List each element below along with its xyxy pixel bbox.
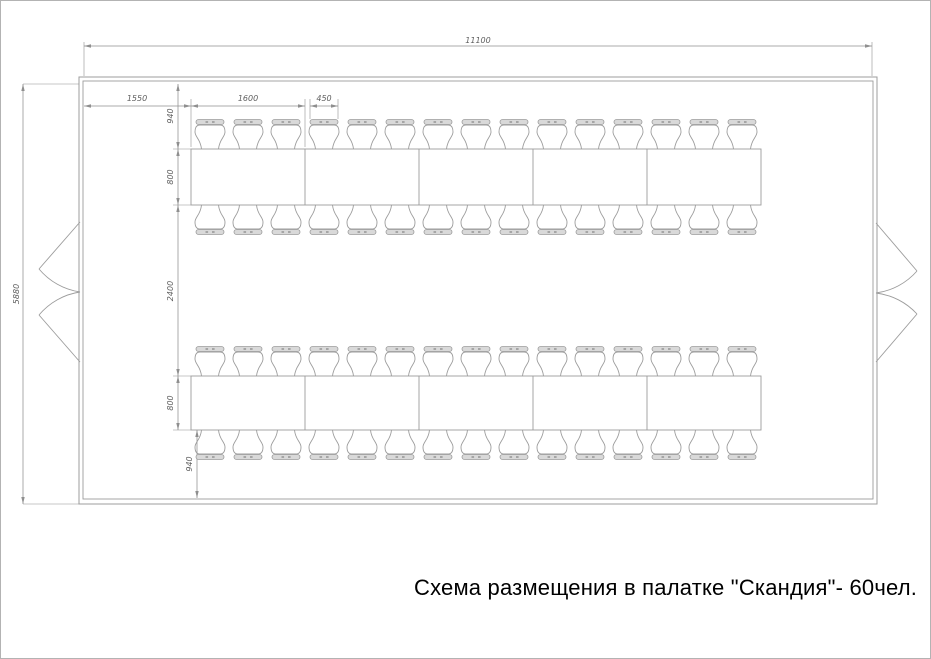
- backrest-dot: [212, 121, 215, 123]
- chair-seat: [233, 430, 263, 454]
- backrest-dot: [364, 121, 367, 123]
- chair: [233, 430, 263, 460]
- backrest-dot: [326, 121, 329, 123]
- backrest-dot: [554, 348, 557, 350]
- chair-seat: [537, 205, 567, 229]
- chair: [613, 347, 643, 377]
- chair-backrest: [310, 347, 338, 352]
- chair-seat: [613, 205, 643, 229]
- backrest-dot: [250, 231, 253, 233]
- backrest-dot: [516, 121, 519, 123]
- backrest-dot: [320, 348, 323, 350]
- chair-backrest: [728, 120, 756, 125]
- chair-backrest: [728, 347, 756, 352]
- chair-seat: [727, 352, 757, 376]
- backrest-dot: [434, 231, 437, 233]
- backrest-dot: [288, 456, 291, 458]
- chair-seat: [423, 205, 453, 229]
- chair: [537, 347, 567, 377]
- dimension-arrow: [310, 104, 317, 107]
- backrest-dot: [548, 456, 551, 458]
- backrest-dot: [624, 348, 627, 350]
- dimension-label: 1600: [238, 94, 258, 103]
- chair-seat: [575, 352, 605, 376]
- dimension-arrow: [195, 430, 198, 437]
- backrest-dot: [548, 231, 551, 233]
- backrest-dot: [700, 348, 703, 350]
- caption: Схема размещения в палатке "Скандия"- 60…: [414, 575, 917, 601]
- chair-seat: [537, 352, 567, 376]
- chair: [575, 347, 605, 377]
- backrest-dot: [212, 348, 215, 350]
- backrest-dot: [206, 456, 209, 458]
- entrance-right: [876, 223, 917, 362]
- chair-backrest: [690, 120, 718, 125]
- chair-seat: [499, 205, 529, 229]
- chair-seat: [385, 125, 415, 149]
- door-leaf: [39, 315, 80, 362]
- chair: [423, 347, 453, 377]
- chair: [385, 205, 415, 235]
- backrest-dot: [700, 456, 703, 458]
- chair-backrest: [462, 230, 490, 235]
- chair-backrest: [576, 455, 604, 460]
- backrest-dot: [554, 456, 557, 458]
- chair-backrest: [196, 455, 224, 460]
- chair-seat: [385, 430, 415, 454]
- chair-backrest: [272, 455, 300, 460]
- backrest-dot: [548, 348, 551, 350]
- chair-seat: [233, 205, 263, 229]
- chair-backrest: [728, 455, 756, 460]
- backrest-dot: [738, 231, 741, 233]
- backrest-dot: [744, 231, 747, 233]
- backrest-dot: [478, 348, 481, 350]
- backrest-dot: [434, 121, 437, 123]
- chair: [613, 205, 643, 235]
- chair-backrest: [196, 230, 224, 235]
- chair: [233, 205, 263, 235]
- drawing-page: 111005880155016004509408002400800940 Схе…: [0, 0, 931, 659]
- backrest-dot: [288, 231, 291, 233]
- chair: [309, 347, 339, 377]
- backrest-dot: [700, 121, 703, 123]
- backrest-dot: [668, 121, 671, 123]
- chair-backrest: [348, 455, 376, 460]
- backrest-dot: [472, 348, 475, 350]
- table-row: [191, 120, 761, 235]
- dimension-label: 11100: [465, 36, 490, 45]
- dimension-arrow: [176, 205, 179, 212]
- backrest-dot: [250, 121, 253, 123]
- dimension-arrow: [331, 104, 338, 107]
- backrest-dot: [630, 456, 633, 458]
- backrest-dot: [326, 456, 329, 458]
- backrest-dot: [320, 121, 323, 123]
- dimension-arrow: [176, 423, 179, 430]
- door-swing-arc: [39, 269, 80, 292]
- chair: [195, 430, 225, 460]
- chair-backrest: [690, 455, 718, 460]
- backrest-dot: [630, 231, 633, 233]
- backrest-dot: [744, 121, 747, 123]
- dimension-chair-width: 450: [310, 94, 338, 119]
- chair: [233, 120, 263, 150]
- dimension-label: 940: [185, 456, 194, 471]
- entrance-left: [39, 222, 80, 362]
- backrest-dot: [440, 348, 443, 350]
- chair-seat: [347, 352, 377, 376]
- backrest-dot: [706, 456, 709, 458]
- chair-backrest: [386, 230, 414, 235]
- chair-seat: [309, 352, 339, 376]
- chair: [727, 205, 757, 235]
- chair: [537, 205, 567, 235]
- backrest-dot: [206, 231, 209, 233]
- backrest-dot: [706, 348, 709, 350]
- backrest-dot: [364, 231, 367, 233]
- chair-backrest: [500, 120, 528, 125]
- chair-seat: [461, 205, 491, 229]
- dimension-arrow: [176, 369, 179, 376]
- dimension-label: 450: [316, 94, 331, 103]
- dimension-arrow: [191, 104, 198, 107]
- backrest-dot: [592, 231, 595, 233]
- chair: [537, 430, 567, 460]
- backrest-dot: [510, 231, 513, 233]
- chair: [309, 205, 339, 235]
- backrest-dot: [244, 121, 247, 123]
- chair-backrest: [272, 230, 300, 235]
- backrest-dot: [548, 121, 551, 123]
- backrest-dot: [402, 121, 405, 123]
- backrest-dot: [662, 121, 665, 123]
- chair: [271, 120, 301, 150]
- chair: [461, 430, 491, 460]
- chair: [195, 347, 225, 377]
- backrest-dot: [662, 348, 665, 350]
- chair-seat: [499, 352, 529, 376]
- chair: [461, 120, 491, 150]
- chair-seat: [651, 430, 681, 454]
- chair-backrest: [424, 120, 452, 125]
- chair-backrest: [652, 455, 680, 460]
- chair-seat: [727, 430, 757, 454]
- chair: [271, 205, 301, 235]
- backrest-dot: [668, 231, 671, 233]
- dimension-arrow: [176, 142, 179, 149]
- chair-backrest: [310, 455, 338, 460]
- backrest-dot: [434, 348, 437, 350]
- chair: [499, 347, 529, 377]
- chair: [651, 347, 681, 377]
- chair-seat: [195, 352, 225, 376]
- table-row: [191, 347, 761, 460]
- backrest-dot: [440, 456, 443, 458]
- chair-backrest: [386, 120, 414, 125]
- chair: [347, 120, 377, 150]
- chair-backrest: [500, 347, 528, 352]
- chair: [689, 205, 719, 235]
- chair-backrest: [386, 347, 414, 352]
- backrest-dot: [738, 121, 741, 123]
- chair: [575, 120, 605, 150]
- chair-seat: [575, 125, 605, 149]
- backrest-dot: [516, 231, 519, 233]
- chair: [613, 120, 643, 150]
- chair-backrest: [500, 455, 528, 460]
- chair: [347, 347, 377, 377]
- chair-seat: [689, 205, 719, 229]
- chair-seat: [309, 430, 339, 454]
- chair: [423, 430, 453, 460]
- chair-seat: [233, 125, 263, 149]
- chair-backrest: [310, 120, 338, 125]
- chair-seat: [689, 430, 719, 454]
- chair: [271, 430, 301, 460]
- dimension-table-depth-bottom: 800: [166, 376, 191, 430]
- chair-seat: [309, 205, 339, 229]
- backrest-dot: [244, 456, 247, 458]
- dimension-arrow: [21, 497, 24, 504]
- backrest-dot: [510, 456, 513, 458]
- backrest-dot: [440, 231, 443, 233]
- chair-backrest: [348, 120, 376, 125]
- backrest-dot: [624, 456, 627, 458]
- chair-seat: [347, 125, 377, 149]
- backrest-dot: [358, 456, 361, 458]
- dimension-arrow: [184, 104, 191, 107]
- chair-backrest: [538, 347, 566, 352]
- chair-backrest: [234, 230, 262, 235]
- dimension-label: 1550: [127, 94, 147, 103]
- backrest-dot: [630, 348, 633, 350]
- backrest-dot: [668, 348, 671, 350]
- dimension-label: 800: [166, 395, 175, 410]
- dimension-label: 2400: [166, 281, 175, 301]
- dimension-arrow: [176, 376, 179, 383]
- chair-seat: [309, 125, 339, 149]
- chair: [461, 347, 491, 377]
- chair-backrest: [386, 455, 414, 460]
- chair: [347, 430, 377, 460]
- chair-seat: [613, 125, 643, 149]
- backrest-dot: [668, 456, 671, 458]
- chair: [461, 205, 491, 235]
- chair-backrest: [614, 230, 642, 235]
- backrest-dot: [250, 456, 253, 458]
- chair-backrest: [348, 347, 376, 352]
- chair: [385, 430, 415, 460]
- chair: [727, 347, 757, 377]
- chair-backrest: [234, 455, 262, 460]
- backrest-dot: [510, 121, 513, 123]
- backrest-dot: [396, 231, 399, 233]
- chair-seat: [385, 352, 415, 376]
- backrest-dot: [212, 231, 215, 233]
- backrest-dot: [402, 348, 405, 350]
- chair-backrest: [310, 230, 338, 235]
- banquet-table: [191, 376, 761, 430]
- chair: [233, 347, 263, 377]
- chair: [651, 430, 681, 460]
- backrest-dot: [396, 456, 399, 458]
- chair-seat: [271, 430, 301, 454]
- chair-backrest: [652, 347, 680, 352]
- backrest-dot: [288, 121, 291, 123]
- chair-seat: [689, 125, 719, 149]
- dimension-arrow: [176, 84, 179, 91]
- backrest-dot: [744, 456, 747, 458]
- backrest-dot: [662, 456, 665, 458]
- backrest-dot: [478, 231, 481, 233]
- chair: [689, 120, 719, 150]
- dimension-arrow: [84, 44, 91, 47]
- chair-backrest: [500, 230, 528, 235]
- backrest-dot: [282, 121, 285, 123]
- backrest-dot: [478, 456, 481, 458]
- backrest-dot: [738, 456, 741, 458]
- chair-backrest: [462, 120, 490, 125]
- chair-backrest: [690, 230, 718, 235]
- backrest-dot: [586, 456, 589, 458]
- backrest-dot: [396, 348, 399, 350]
- backrest-dot: [472, 121, 475, 123]
- backrest-dot: [206, 121, 209, 123]
- chair-backrest: [348, 230, 376, 235]
- drawing-root: 111005880155016004509408002400800940: [12, 36, 917, 504]
- backrest-dot: [244, 348, 247, 350]
- chair: [385, 120, 415, 150]
- chair-backrest: [538, 230, 566, 235]
- chair-backrest: [652, 230, 680, 235]
- backrest-dot: [282, 456, 285, 458]
- backrest-dot: [288, 348, 291, 350]
- backrest-dot: [478, 121, 481, 123]
- chair-backrest: [728, 230, 756, 235]
- backrest-dot: [744, 348, 747, 350]
- chair-backrest: [614, 120, 642, 125]
- backrest-dot: [364, 456, 367, 458]
- dimension-arrow: [21, 84, 24, 91]
- chair-backrest: [462, 347, 490, 352]
- backrest-dot: [706, 121, 709, 123]
- chair-backrest: [424, 230, 452, 235]
- dimension-arrow: [176, 198, 179, 205]
- dimension-chair-zone-depth-bottom: 940: [185, 430, 199, 498]
- backrest-dot: [402, 231, 405, 233]
- chair-backrest: [462, 455, 490, 460]
- chair: [613, 430, 643, 460]
- backrest-dot: [592, 348, 595, 350]
- chair-backrest: [424, 455, 452, 460]
- backrest-dot: [434, 456, 437, 458]
- chair-seat: [271, 205, 301, 229]
- chair-seat: [461, 430, 491, 454]
- chair-seat: [651, 352, 681, 376]
- chair-seat: [461, 352, 491, 376]
- dimension-chair-zone-depth-top: 940: [166, 84, 191, 149]
- door-swing-arc: [876, 271, 917, 293]
- chair-seat: [499, 125, 529, 149]
- chair-seat: [233, 352, 263, 376]
- chair: [575, 205, 605, 235]
- chair: [499, 205, 529, 235]
- chair-seat: [347, 430, 377, 454]
- dimension-aisle-between-tables: 2400: [166, 205, 191, 376]
- dimension-table-depth-top: 800: [166, 149, 191, 205]
- backrest-dot: [738, 348, 741, 350]
- tent-wall-inner: [83, 81, 873, 499]
- chair-seat: [537, 125, 567, 149]
- chair-backrest: [576, 347, 604, 352]
- chair-seat: [575, 205, 605, 229]
- backrest-dot: [326, 348, 329, 350]
- dimension-tent-width: 11100: [84, 36, 872, 76]
- chair-seat: [271, 125, 301, 149]
- chair: [575, 430, 605, 460]
- backrest-dot: [586, 121, 589, 123]
- dimension-arrow: [176, 149, 179, 156]
- backrest-dot: [554, 231, 557, 233]
- chair-seat: [195, 430, 225, 454]
- backrest-dot: [586, 348, 589, 350]
- chair-backrest: [272, 347, 300, 352]
- chair-backrest: [538, 455, 566, 460]
- backrest-dot: [358, 121, 361, 123]
- chair-backrest: [424, 347, 452, 352]
- chair-seat: [271, 352, 301, 376]
- door-leaf: [876, 223, 917, 271]
- chair-backrest: [196, 120, 224, 125]
- backrest-dot: [510, 348, 513, 350]
- chair: [195, 120, 225, 150]
- chair: [689, 430, 719, 460]
- chair-seat: [613, 352, 643, 376]
- chair-backrest: [576, 230, 604, 235]
- backrest-dot: [700, 231, 703, 233]
- dimension-tent-depth: 5880: [12, 84, 79, 504]
- chair-seat: [423, 352, 453, 376]
- chair-seat: [347, 205, 377, 229]
- chair-backrest: [576, 120, 604, 125]
- backrest-dot: [472, 231, 475, 233]
- chair-seat: [423, 430, 453, 454]
- chair: [309, 120, 339, 150]
- chair: [271, 347, 301, 377]
- chair-backrest: [234, 120, 262, 125]
- dimension-label: 800: [166, 169, 175, 184]
- dimension-label: 5880: [12, 284, 21, 304]
- backrest-dot: [320, 456, 323, 458]
- backrest-dot: [630, 121, 633, 123]
- chair-backrest: [690, 347, 718, 352]
- floor-plan-svg: 111005880155016004509408002400800940: [1, 1, 931, 659]
- chair: [195, 205, 225, 235]
- chair: [689, 347, 719, 377]
- chair-backrest: [614, 347, 642, 352]
- chair-seat: [651, 125, 681, 149]
- backrest-dot: [402, 456, 405, 458]
- chair-backrest: [272, 120, 300, 125]
- chair: [651, 120, 681, 150]
- backrest-dot: [244, 231, 247, 233]
- chair: [727, 430, 757, 460]
- backrest-dot: [396, 121, 399, 123]
- chair-seat: [575, 430, 605, 454]
- chair-seat: [613, 430, 643, 454]
- chair-backrest: [196, 347, 224, 352]
